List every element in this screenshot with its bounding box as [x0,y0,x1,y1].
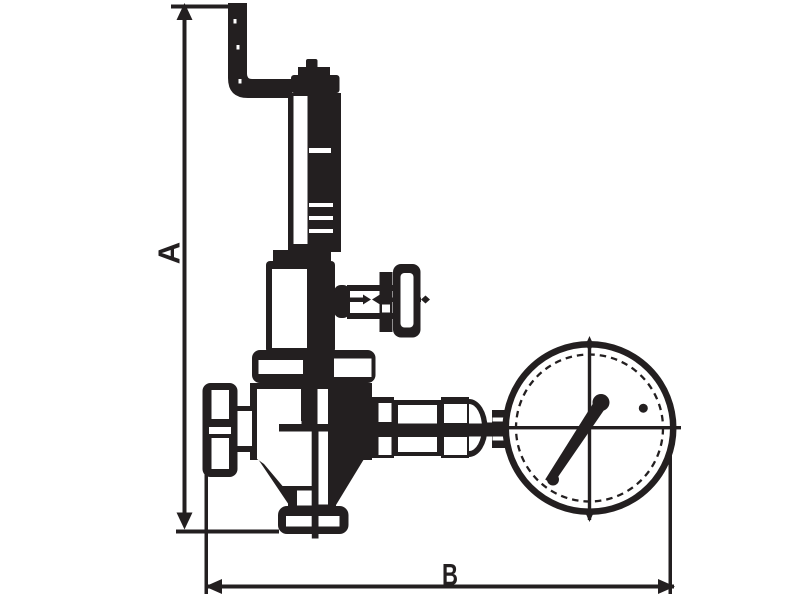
svg-text:B: B [442,557,458,592]
svg-text:A: A [152,242,187,264]
